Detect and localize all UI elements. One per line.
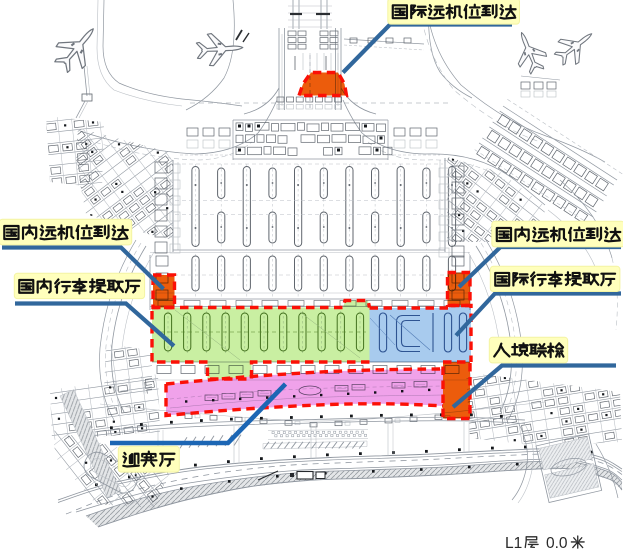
svg-text:L1: L1 xyxy=(505,535,522,552)
svg-text:0.0: 0.0 xyxy=(546,535,568,552)
